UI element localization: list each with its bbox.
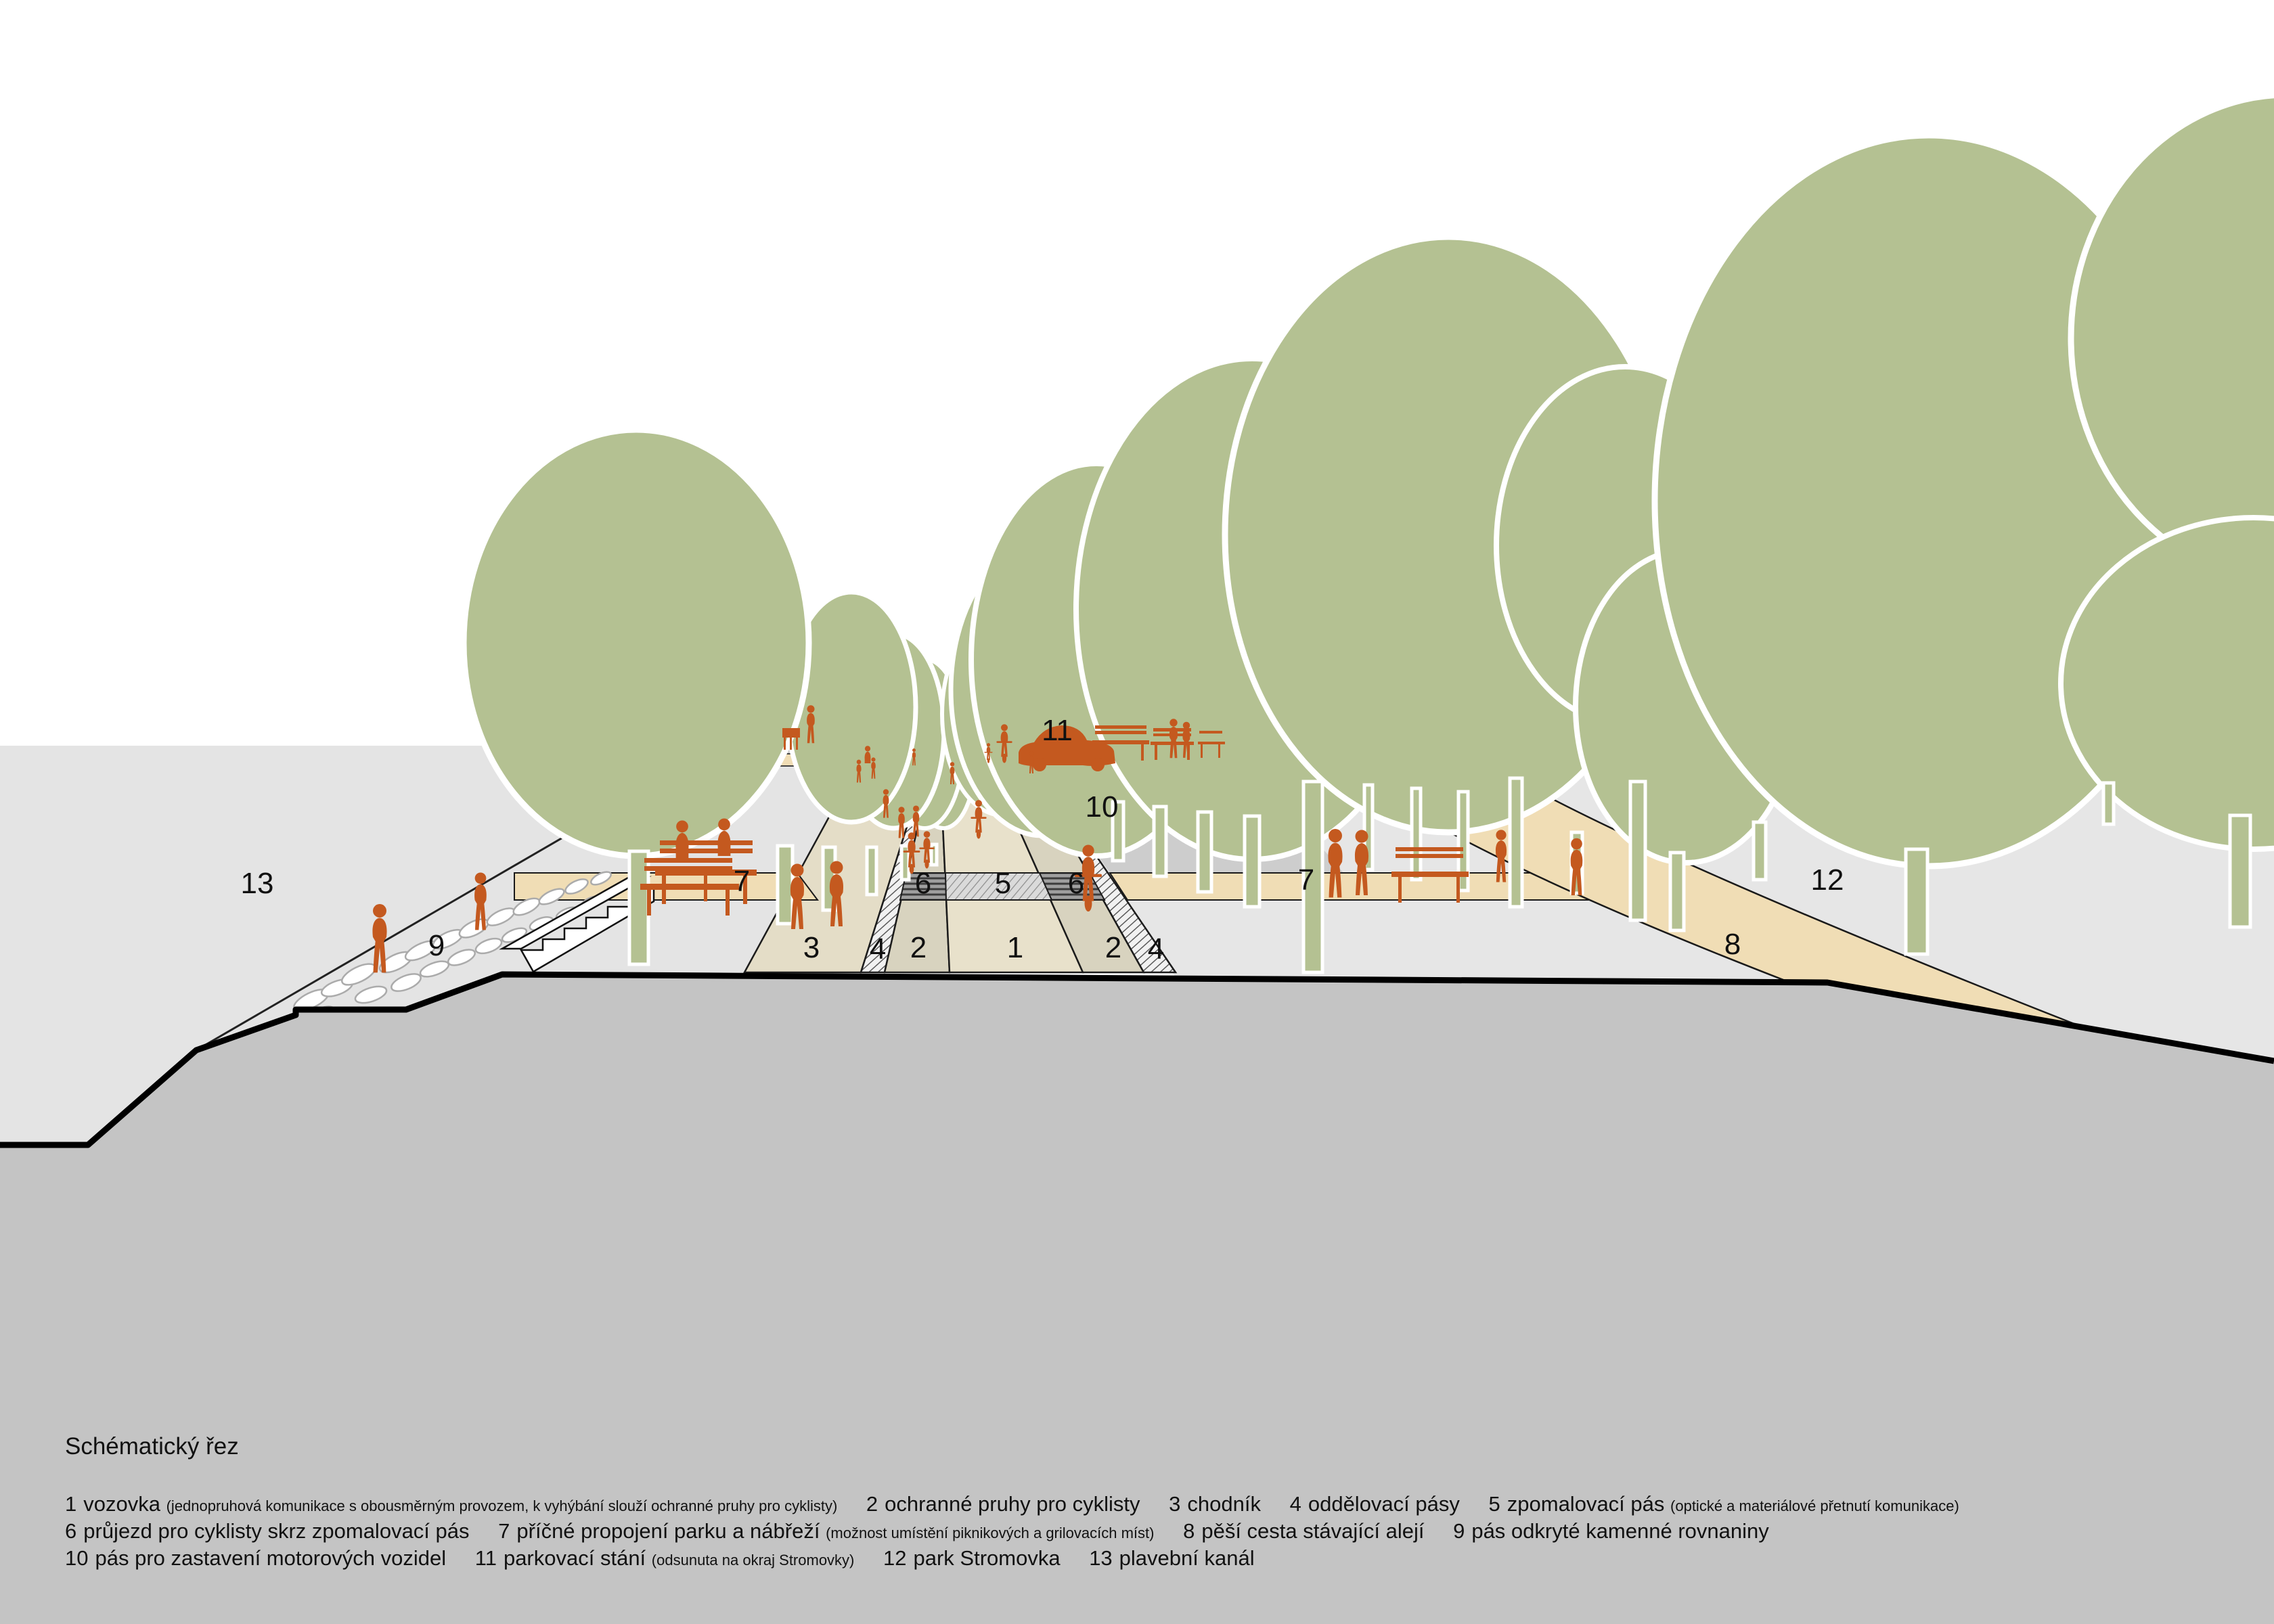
legend-item-8: 8pěší cesta stávající alejí	[1183, 1519, 1424, 1543]
section-scene: 1 2 2 3 4 4 5 6 6 7 7 8 9 10 11 12 13	[0, 0, 2274, 1624]
legend-item-13: 13plavební kanál	[1089, 1546, 1254, 1570]
legend-item-6: 6průjezd pro cyklisty skrz zpomalovací p…	[65, 1519, 470, 1543]
marker-4-left: 4	[870, 932, 886, 966]
marker-4-right: 4	[1148, 932, 1164, 966]
marker-7-right: 7	[1298, 863, 1314, 897]
drawing-title: Schématický řez	[65, 1433, 2217, 1460]
marker-9: 9	[428, 929, 445, 962]
legend-line-2: 6průjezd pro cyklisty skrz zpomalovací p…	[65, 1518, 2217, 1546]
legend-line-1: 1vozovka (jednopruhová komunikace s obou…	[65, 1491, 2217, 1518]
grill	[782, 728, 800, 750]
legend-item-7: 7příčné propojení parku a nábřeží (možno…	[498, 1519, 1154, 1543]
legend: Schématický řez 1vozovka (jednopruhová k…	[65, 1433, 2217, 1573]
legend-item-9: 9pás odkryté kamenné rovnaniny	[1453, 1519, 1769, 1543]
marker-11: 11	[1042, 714, 1073, 747]
marker-3: 3	[803, 931, 820, 964]
legend-item-1: 1vozovka (jednopruhová komunikace s obou…	[65, 1492, 837, 1516]
marker-7-left: 7	[734, 865, 750, 898]
marker-5: 5	[995, 867, 1011, 900]
legend-item-10: 10pás pro zastavení motorových vozidel	[65, 1546, 446, 1570]
seated-on-bench	[717, 818, 730, 856]
legend-item-2: 2ochranné pruhy pro cyklisty	[866, 1492, 1140, 1516]
legend-item-4: 4oddělovací pásy	[1290, 1492, 1460, 1516]
legend-item-3: 3chodník	[1169, 1492, 1261, 1516]
seated-on-bench	[675, 820, 688, 858]
schematic-section-drawing: 1 2 2 3 4 4 5 6 6 7 7 8 9 10 11 12 13 Sc…	[0, 0, 2274, 1624]
marker-2-left: 2	[910, 931, 927, 964]
big-left-tree-canopy	[464, 430, 809, 856]
marker-13: 13	[241, 867, 274, 900]
marker-8: 8	[1724, 928, 1741, 961]
figure-bent	[865, 746, 871, 763]
legend-line-3: 10pás pro zastavení motorových vozidel 1…	[65, 1546, 2217, 1573]
marker-6-left: 6	[915, 867, 931, 900]
marker-1: 1	[1007, 931, 1023, 964]
marker-10: 10	[1086, 790, 1119, 824]
marker-12: 12	[1811, 863, 1844, 897]
marker-6-right: 6	[1068, 867, 1084, 900]
legend-item-12: 12park Stromovka	[883, 1546, 1061, 1570]
marker-2-right: 2	[1105, 931, 1121, 964]
legend-item-5: 5zpomalovací pás (optické a materiálové …	[1489, 1492, 1959, 1516]
legend-item-11: 11parkovací stání (odsunuta na okraj Str…	[475, 1546, 855, 1570]
